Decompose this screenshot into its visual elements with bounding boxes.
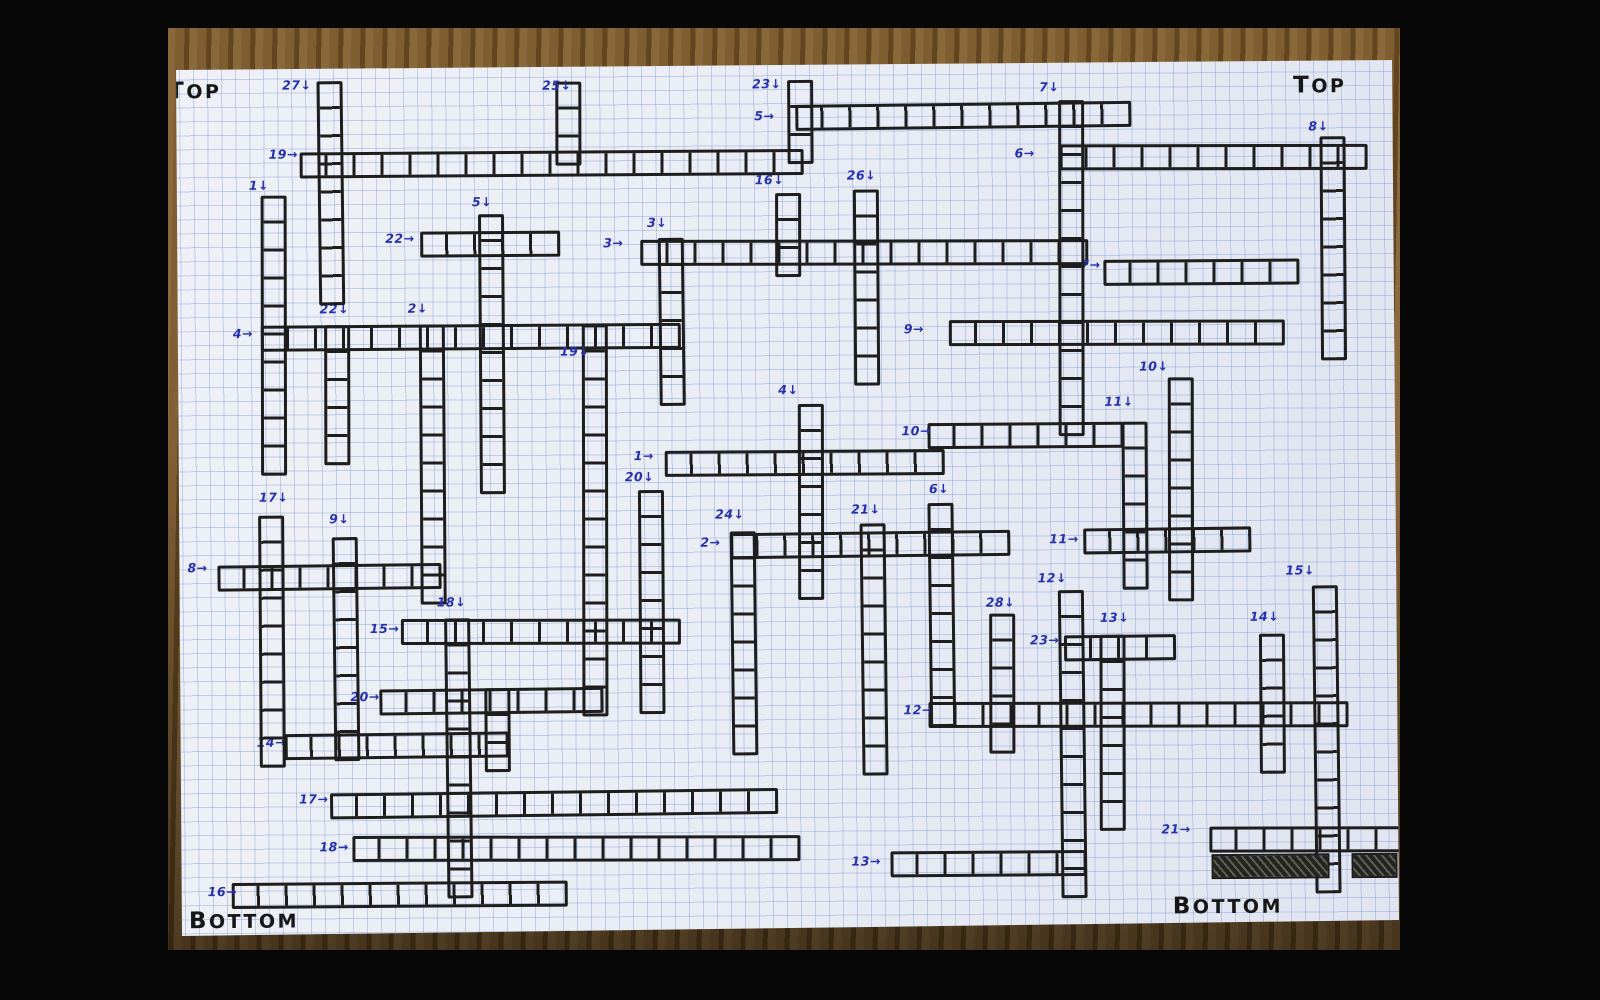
clue-label-10-across: 10→: [901, 425, 930, 438]
clue-label-5-across: 5→: [754, 110, 774, 123]
across-word-17: [330, 788, 778, 819]
orientation-mark-bottom-right: BOTTOM: [1173, 895, 1283, 919]
clue-label-2-down: 2↓: [408, 303, 428, 316]
down-word-10: [1168, 377, 1194, 601]
clue-label-4-across: 4→: [233, 328, 253, 341]
down-word-20: [638, 490, 666, 714]
clue-label-21-down: 21↓: [851, 503, 880, 516]
clue-label-25-down: 25↓: [542, 80, 571, 93]
clue-label-13-down: 13↓: [1100, 612, 1129, 625]
clue-label-12-down: 12↓: [1038, 572, 1067, 585]
down-word-4: [798, 404, 824, 600]
across-word-8: [217, 563, 441, 592]
down-word-16: [775, 193, 801, 277]
down-word-18: [444, 618, 473, 898]
crossword-grid-layer: TOP TOP BOTTOM BOTTOM 1→2→3→4→5→6→7→8→9→…: [0, 0, 1600, 1000]
clue-label-26-down: 26↓: [847, 169, 876, 182]
shaded-cells-1: [1211, 853, 1329, 879]
down-word-8: [1319, 136, 1347, 360]
down-word-13: [1099, 635, 1125, 831]
down-word-24: [730, 531, 759, 755]
clue-label-23-down: 23↓: [752, 78, 781, 91]
clue-label-18-down: 18↓: [437, 596, 466, 609]
clue-label-10-down: 10↓: [1139, 360, 1168, 373]
clue-label-5-down: 5↓: [472, 196, 492, 209]
clue-label-22-across: 22→: [385, 233, 414, 246]
clue-label-28-down: 28↓: [986, 597, 1015, 610]
clue-label-1-across: 1→: [634, 450, 654, 463]
down-word-19: [582, 324, 609, 716]
clue-label-6-down: 6↓: [929, 483, 949, 496]
clue-label-27-down: 27↓: [282, 79, 311, 92]
down-word-15: [1312, 585, 1342, 893]
across-word-10: [927, 422, 1123, 449]
clue-label-19-across: 19→: [269, 148, 298, 161]
across-word-19: [300, 149, 804, 179]
shaded-cells-2: [1351, 853, 1397, 878]
clue-label-17-across: 17→: [299, 793, 328, 806]
clue-label-2-across: 2→: [700, 537, 720, 550]
clue-label-23-across: 23→: [1030, 634, 1059, 647]
clue-label-14-down: 14↓: [1250, 611, 1279, 624]
down-word-21: [860, 523, 889, 775]
down-word-7: [1058, 100, 1085, 436]
clue-label-7-down: 7↓: [1039, 81, 1059, 94]
down-word-26: [853, 189, 880, 385]
clue-label-17-down: 17↓: [259, 492, 288, 505]
across-word-7: [1103, 259, 1299, 286]
across-word-16: [232, 881, 568, 909]
across-word-21: [1209, 826, 1405, 852]
down-word-28: [989, 614, 1015, 754]
clue-label-8-down: 8↓: [1308, 120, 1328, 133]
clue-label-9-down: 9↓: [329, 513, 349, 526]
across-word-14: [285, 731, 509, 760]
clue-label-6-across: 6→: [1015, 147, 1035, 160]
down-word-9: [332, 537, 361, 761]
clue-label-9-across: 9→: [904, 323, 924, 336]
clue-label-12-across: 12→: [903, 704, 932, 717]
down-word-2: [419, 324, 447, 604]
down-word-11: [1121, 422, 1148, 590]
clue-label-19-down: 19↓: [560, 345, 589, 358]
down-word-22: [324, 325, 350, 465]
clue-label-3-down: 3↓: [647, 217, 667, 230]
clue-label-11-across: 11→: [1049, 533, 1078, 546]
clue-label-16-down: 16↓: [755, 174, 784, 187]
unnumbered-word-1: [484, 688, 511, 772]
clue-label-21-across: 21→: [1161, 823, 1190, 836]
down-word-12: [1058, 590, 1088, 898]
clue-label-11-down: 11↓: [1104, 396, 1133, 409]
clue-label-1-down: 1↓: [249, 180, 269, 193]
clue-label-4-down: 4↓: [778, 384, 798, 397]
orientation-mark-top-right: TOP: [1293, 74, 1346, 97]
photo-stage: TOP TOP BOTTOM BOTTOM 1→2→3→4→5→6→7→8→9→…: [0, 0, 1600, 1000]
clue-label-20-down: 20↓: [625, 471, 654, 484]
clue-label-8-across: 8→: [187, 562, 207, 575]
down-word-14: [1259, 634, 1286, 774]
clue-label-24-down: 24↓: [715, 508, 744, 521]
clue-label-18-across: 18→: [319, 841, 348, 854]
down-word-6: [927, 503, 956, 727]
clue-label-15-across: 15→: [370, 623, 399, 636]
down-word-17: [258, 516, 286, 768]
across-word-13: [890, 850, 1086, 877]
across-word-18: [352, 835, 800, 862]
clue-label-16-across: 16→: [208, 886, 237, 899]
across-word-9: [949, 319, 1285, 346]
clue-label-3-across: 3→: [603, 237, 623, 250]
down-word-1: [261, 196, 287, 476]
down-word-23: [787, 80, 814, 164]
down-word-27: [316, 81, 345, 305]
down-word-25: [555, 82, 581, 166]
clue-label-13-across: 13→: [851, 855, 880, 868]
clue-label-15-down: 15↓: [1285, 564, 1314, 577]
down-word-3: [658, 238, 686, 406]
orientation-mark-bottom-left: BOTTOM: [189, 910, 299, 934]
down-word-5: [478, 214, 506, 494]
graph-paper-sheet: TOP TOP BOTTOM BOTTOM 1→2→3→4→5→6→7→8→9→…: [0, 0, 1600, 1000]
